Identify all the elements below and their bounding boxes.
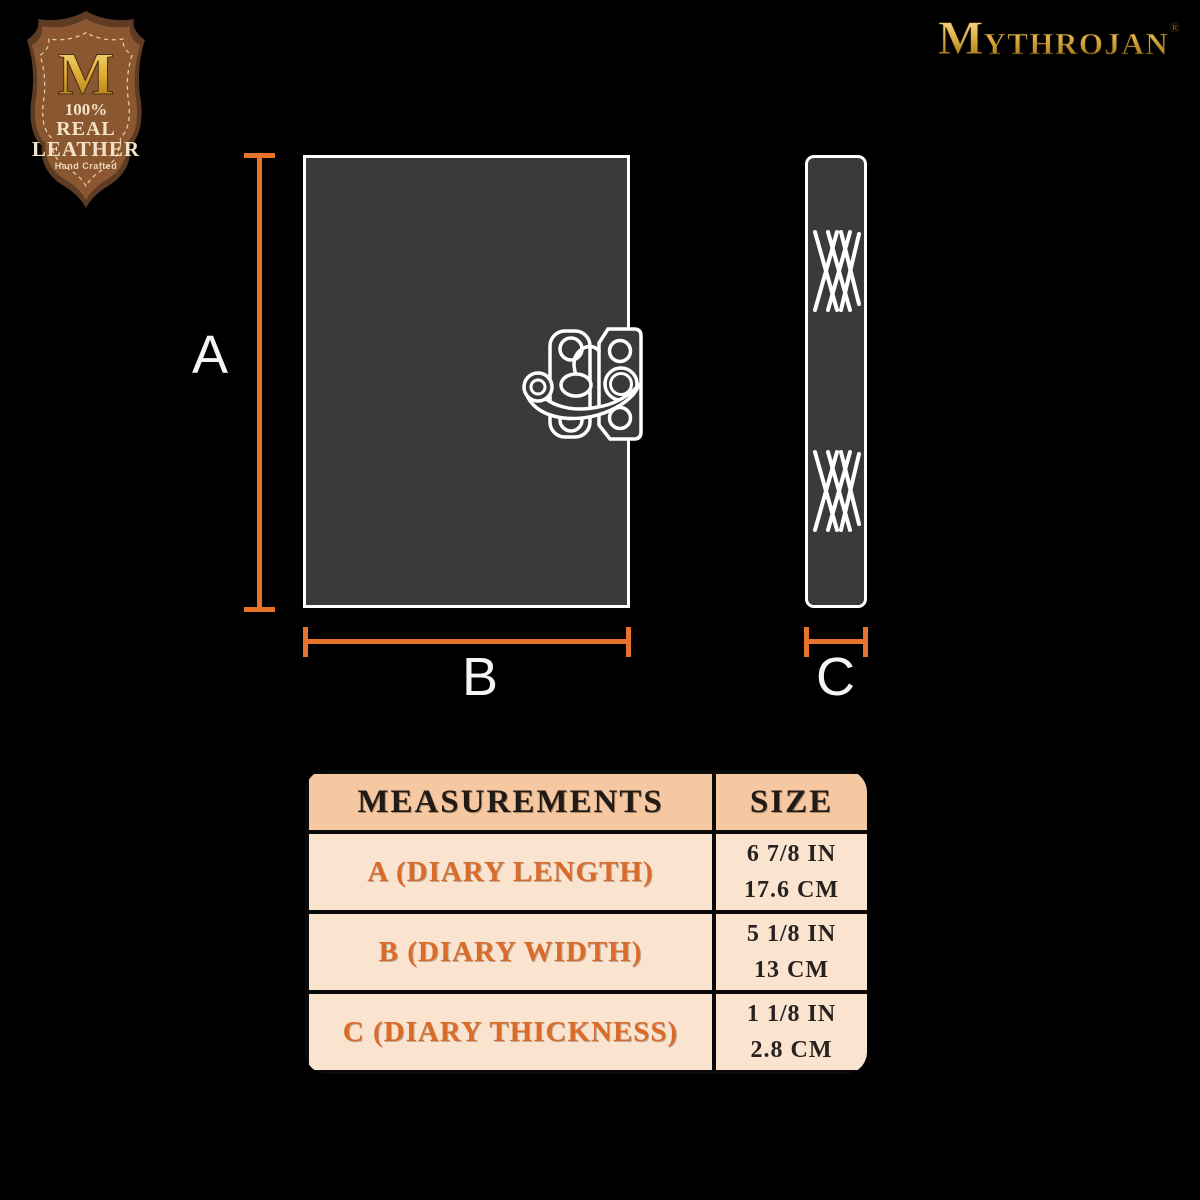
dimension-b-line [303,639,631,644]
clasp-hook-icon [508,321,648,451]
brand-logo: MYTHROJAN® [932,6,1196,72]
leather-badge: M 100% REAL LEATHER Hand Crafted [20,6,152,212]
dimension-a-cap-top [244,153,275,158]
dimension-a-cap-bottom [244,607,275,612]
row-c-measurement: C (DIARY THICKNESS) [343,1016,678,1049]
diary-side-view [805,155,867,608]
table-row-b-label: B (DIARY WIDTH) [309,914,712,990]
table-header-size: SIZE [716,774,867,830]
brand-initial: M [938,12,983,65]
table-header-measurements: MEASUREMENTS [309,774,712,830]
table-row-a-size: 6 7/8 IN 17.6 CM [716,834,867,910]
brand-wordmark: MYTHROJAN® [938,12,1180,65]
table-row-a-label: A (DIARY LENGTH) [309,834,712,910]
measurements-table: MEASUREMENTS SIZE A (DIARY LENGTH) 6 7/8… [305,770,867,1074]
row-a-cm: 17.6 CM [744,872,839,908]
row-c-inches: 1 1/8 IN [747,996,836,1032]
dimension-c-cap-right [863,627,868,657]
stitch-lacing-icon [808,226,864,316]
diary-front-view [303,155,630,608]
row-a-inches: 6 7/8 IN [747,836,836,872]
row-b-inches: 5 1/8 IN [747,916,836,952]
brand-monogram-icon: M [58,41,115,107]
dimension-b-cap-right [626,627,631,657]
stitch-lacing-icon [808,446,864,536]
table-row-b-size: 5 1/8 IN 13 CM [716,914,867,990]
dimension-c-line [804,639,868,644]
row-c-cm: 2.8 CM [751,1032,833,1068]
badge-percent-text: 100% [65,100,108,119]
page-canvas: M 100% REAL LEATHER Hand Crafted MYTHROJ… [0,0,1200,1200]
registered-mark: ® [1169,21,1180,36]
row-a-measurement: A (DIARY LENGTH) [367,856,653,889]
brand-rest: YTHROJAN [983,26,1169,61]
dimension-c-label: C [816,650,855,704]
table-row-c-size: 1 1/8 IN 2.8 CM [716,994,867,1070]
dimension-b-cap-left [303,627,308,657]
dimension-a-label: A [192,328,228,382]
badge-subtitle-text: Hand Crafted [55,161,118,171]
dimension-b-label: B [462,650,498,704]
dimension-c-cap-left [804,627,809,657]
dimension-a-line [257,155,262,610]
badge-leather-text: LEATHER [32,137,140,161]
table-row-c-label: C (DIARY THICKNESS) [309,994,712,1070]
row-b-cm: 13 CM [754,952,829,988]
row-b-measurement: B (DIARY WIDTH) [379,936,643,969]
